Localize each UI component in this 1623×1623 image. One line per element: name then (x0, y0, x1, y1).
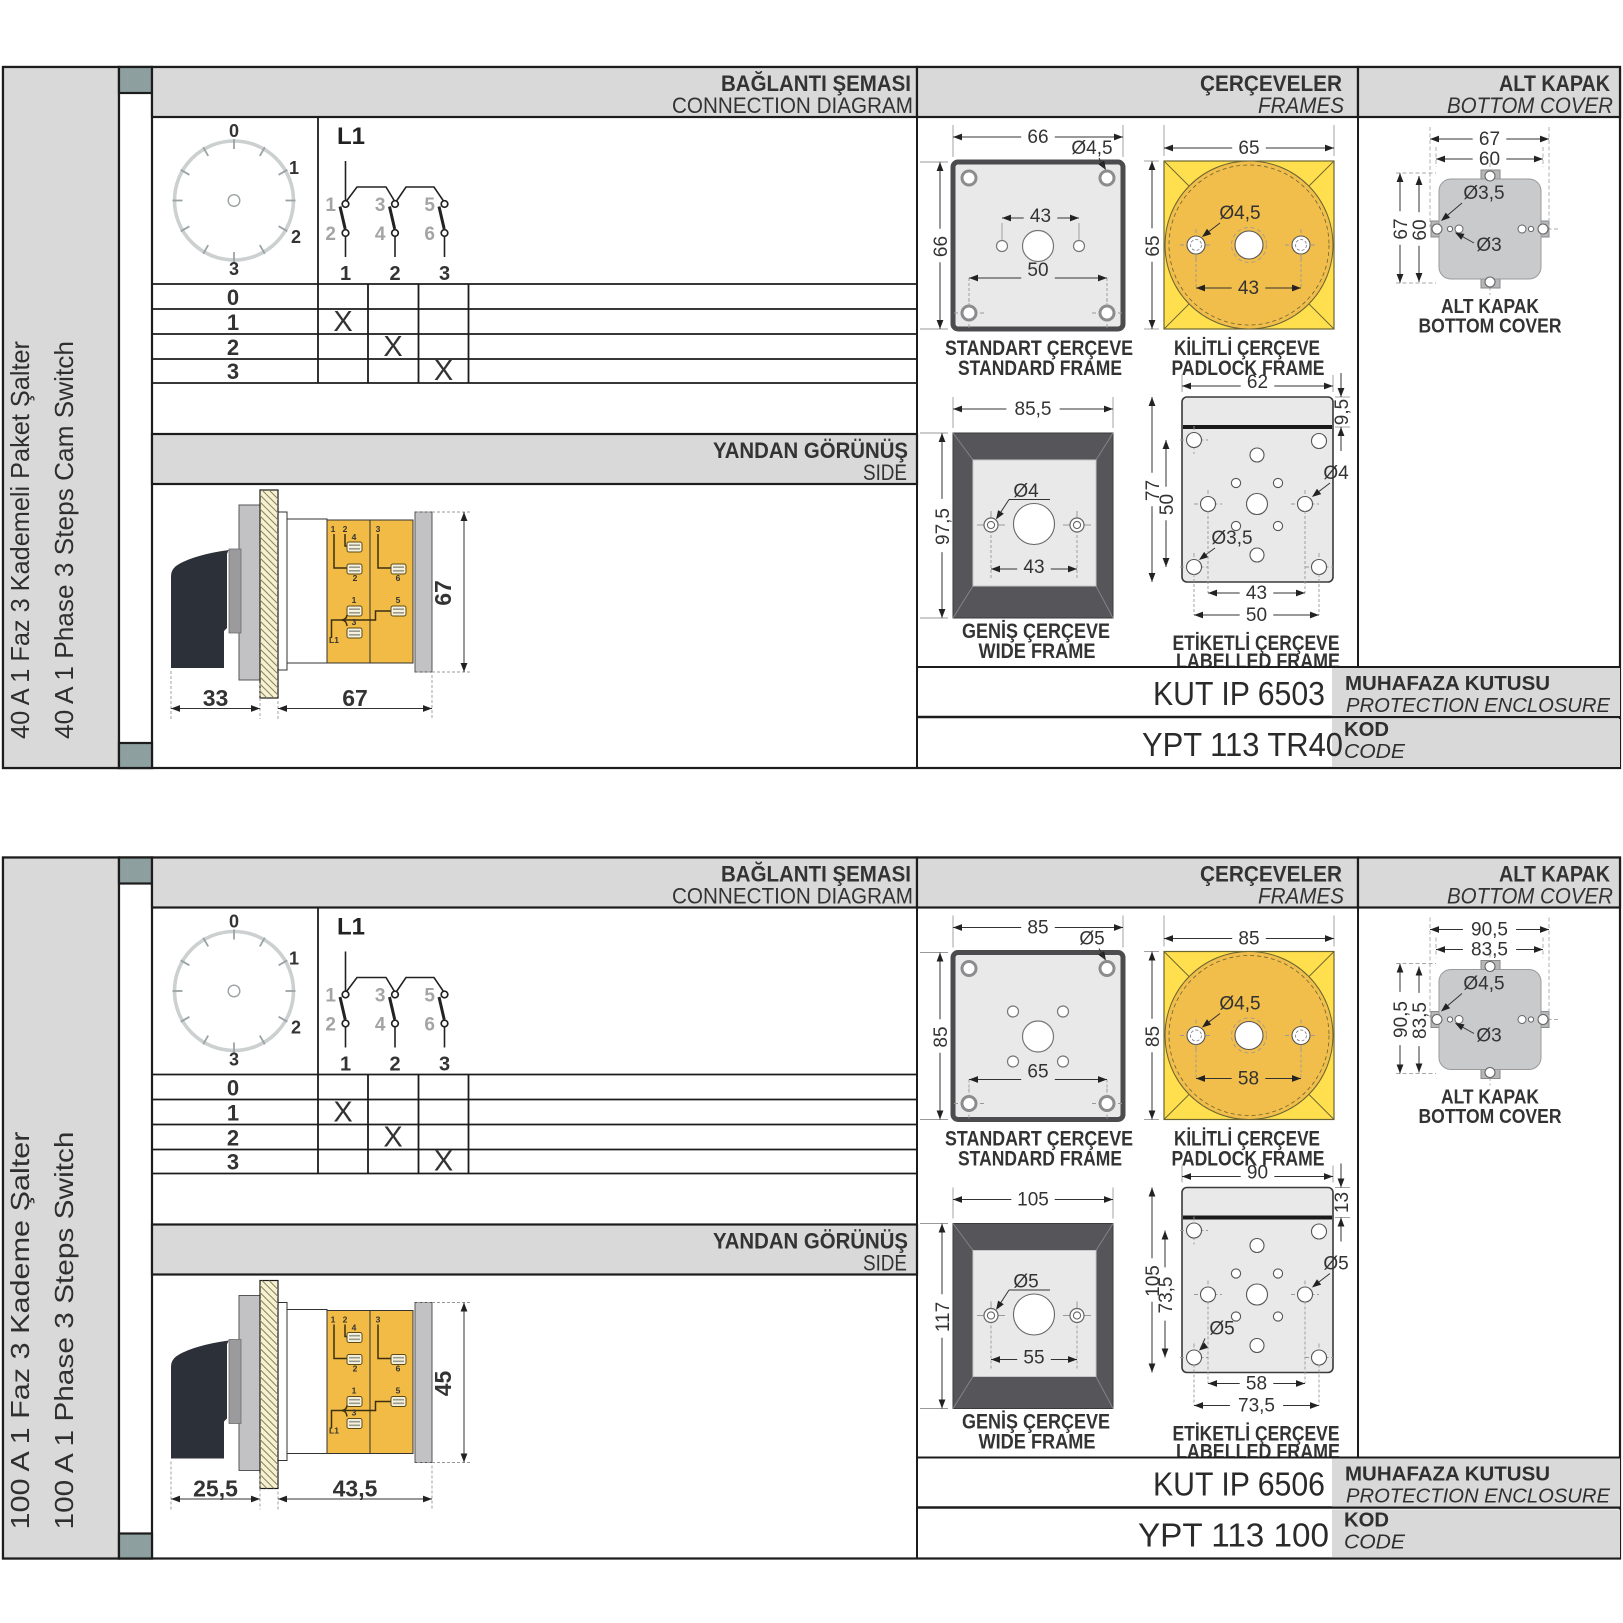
svg-text:6: 6 (424, 224, 435, 245)
svg-text:90,5: 90,5 (1471, 920, 1508, 941)
svg-text:3: 3 (229, 1050, 239, 1070)
svg-text:85,5: 85,5 (1015, 399, 1052, 420)
svg-text:90: 90 (1247, 1163, 1268, 1184)
svg-text:67: 67 (1479, 129, 1500, 150)
svg-text:BOTTOM COVER: BOTTOM COVER (1447, 884, 1613, 909)
svg-text:KUT IP 6503: KUT IP 6503 (1153, 675, 1325, 712)
svg-text:85: 85 (1238, 929, 1259, 950)
svg-text:1: 1 (331, 524, 336, 534)
svg-text:Ø4,5: Ø4,5 (1463, 974, 1504, 995)
svg-text:85: 85 (1027, 918, 1048, 939)
svg-text:1: 1 (227, 310, 239, 335)
svg-text:73,5: 73,5 (1238, 1396, 1275, 1417)
svg-text:4: 4 (375, 1015, 386, 1036)
svg-text:STANDARD FRAME: STANDARD FRAME (958, 357, 1122, 380)
svg-text:Ø5: Ø5 (1079, 929, 1104, 950)
svg-text:9,5: 9,5 (1332, 399, 1353, 425)
svg-text:5: 5 (396, 595, 401, 605)
svg-text:MUHAFAZA KUTUSU: MUHAFAZA KUTUSU (1345, 1464, 1550, 1486)
svg-text:FRAMES: FRAMES (1258, 93, 1344, 118)
svg-text:85: 85 (1143, 1026, 1164, 1047)
svg-text:3: 3 (439, 263, 450, 285)
svg-text:5: 5 (424, 986, 435, 1007)
svg-text:Ø4,5: Ø4,5 (1219, 203, 1260, 224)
svg-text:CONNECTION DIAGRAM: CONNECTION DIAGRAM (672, 884, 913, 909)
svg-text:SIDE: SIDE (863, 1251, 907, 1276)
svg-text:83,5: 83,5 (1471, 940, 1508, 961)
svg-text:1: 1 (325, 986, 336, 1007)
svg-text:4: 4 (352, 532, 357, 542)
svg-text:KOD: KOD (1344, 1510, 1389, 1532)
svg-text:KUT IP 6506: KUT IP 6506 (1153, 1466, 1325, 1503)
svg-text:3: 3 (375, 986, 386, 1007)
svg-text:3: 3 (352, 1408, 357, 1418)
svg-text:1: 1 (352, 1386, 357, 1396)
svg-text:Ø5: Ø5 (1323, 1254, 1348, 1275)
svg-text:0: 0 (227, 1076, 239, 1101)
svg-text:Ø4: Ø4 (1013, 481, 1039, 502)
svg-text:65: 65 (1027, 1062, 1048, 1083)
svg-text:Ø3: Ø3 (1476, 1026, 1501, 1047)
svg-text:BOTTOM COVER: BOTTOM COVER (1447, 93, 1613, 118)
svg-text:73,5: 73,5 (1156, 1277, 1177, 1314)
svg-text:4: 4 (375, 224, 386, 245)
svg-text:LABELLED FRAME: LABELLED FRAME (1176, 650, 1340, 673)
svg-text:2: 2 (291, 1018, 301, 1038)
svg-text:3: 3 (227, 359, 239, 384)
svg-text:Ø5: Ø5 (1013, 1272, 1038, 1293)
svg-text:MUHAFAZA KUTUSU: MUHAFAZA KUTUSU (1345, 673, 1550, 695)
svg-text:0: 0 (229, 912, 239, 932)
svg-text:1: 1 (289, 158, 299, 178)
svg-text:1: 1 (289, 949, 299, 969)
svg-text:Ø3,5: Ø3,5 (1211, 528, 1252, 549)
svg-text:45: 45 (430, 1371, 456, 1397)
svg-text:3: 3 (439, 1054, 450, 1076)
svg-text:65: 65 (1143, 235, 1164, 256)
svg-text:43: 43 (1030, 206, 1051, 227)
svg-text:2: 2 (291, 227, 301, 247)
svg-text:43: 43 (1238, 278, 1259, 299)
svg-text:5: 5 (424, 195, 435, 216)
svg-text:Ø3: Ø3 (1476, 235, 1501, 256)
svg-text:50: 50 (1157, 494, 1178, 515)
svg-text:STANDARD FRAME: STANDARD FRAME (958, 1148, 1122, 1171)
svg-text:1: 1 (340, 1054, 351, 1076)
svg-text:33: 33 (203, 685, 229, 711)
svg-text:58: 58 (1246, 1374, 1267, 1395)
svg-text:97,5: 97,5 (933, 508, 954, 545)
svg-text:4: 4 (352, 1323, 357, 1333)
svg-text:1: 1 (352, 595, 357, 605)
svg-text:0: 0 (229, 121, 239, 141)
svg-text:WIDE FRAME: WIDE FRAME (979, 1431, 1096, 1454)
svg-text:YPT 113 TR40: YPT 113 TR40 (1142, 726, 1343, 763)
svg-text:3: 3 (375, 195, 386, 216)
svg-text:CODE: CODE (1344, 1532, 1406, 1554)
svg-text:CONNECTION DIAGRAM: CONNECTION DIAGRAM (672, 93, 913, 118)
svg-text:Ø5: Ø5 (1209, 1319, 1234, 1340)
svg-text:5: 5 (396, 1386, 401, 1396)
svg-text:66: 66 (931, 236, 952, 257)
svg-text:60: 60 (1479, 149, 1500, 170)
svg-text:43: 43 (1023, 557, 1044, 578)
svg-text:6: 6 (396, 1364, 401, 1374)
svg-text:2: 2 (227, 335, 239, 360)
svg-text:X: X (434, 1146, 453, 1178)
svg-text:90,5: 90,5 (1391, 1001, 1412, 1038)
svg-text:66: 66 (1027, 127, 1048, 148)
svg-text:X: X (383, 1122, 402, 1154)
svg-text:40 A 1 Faz 3 Kademeli Paket Şa: 40 A 1 Faz 3 Kademeli Paket Şalter (5, 341, 35, 739)
svg-text:40 A 1 Phase 3 Steps Cam Switc: 40 A 1 Phase 3 Steps Cam Switch (49, 341, 79, 739)
svg-text:3: 3 (376, 1315, 381, 1325)
svg-text:85: 85 (931, 1026, 952, 1047)
svg-text:105: 105 (1017, 1190, 1049, 1211)
svg-text:PROTECTION ENCLOSURE: PROTECTION ENCLOSURE (1346, 1486, 1611, 1508)
svg-text:X: X (333, 306, 352, 338)
svg-text:62: 62 (1247, 372, 1268, 393)
svg-text:55: 55 (1023, 1348, 1044, 1369)
svg-text:3: 3 (376, 524, 381, 534)
svg-text:Ø4,5: Ø4,5 (1219, 994, 1260, 1015)
svg-text:2: 2 (325, 1015, 336, 1036)
svg-text:2: 2 (389, 1054, 400, 1076)
svg-text:Ø4: Ø4 (1323, 463, 1349, 484)
svg-text:2: 2 (343, 1315, 348, 1325)
svg-text:X: X (333, 1097, 352, 1129)
svg-text:BOTTOM COVER: BOTTOM COVER (1419, 1106, 1562, 1128)
svg-text:6: 6 (424, 1015, 435, 1036)
svg-text:L1: L1 (337, 914, 365, 941)
svg-text:67: 67 (1391, 218, 1412, 239)
svg-text:58: 58 (1238, 1069, 1259, 1090)
svg-text:3: 3 (352, 617, 357, 627)
svg-text:2: 2 (389, 263, 400, 285)
svg-text:43: 43 (1246, 583, 1267, 604)
svg-text:1: 1 (227, 1101, 239, 1126)
svg-text:2: 2 (353, 1364, 358, 1374)
svg-text:100 A 1 Phase 3 Steps Switch: 100 A 1 Phase 3 Steps Switch (49, 1132, 79, 1530)
svg-text:0: 0 (227, 285, 239, 310)
svg-text:1: 1 (325, 195, 336, 216)
svg-text:WIDE FRAME: WIDE FRAME (979, 640, 1096, 663)
svg-text:X: X (383, 331, 402, 363)
svg-text:Ø3,5: Ø3,5 (1463, 183, 1504, 204)
svg-text:43,5: 43,5 (333, 1476, 378, 1502)
svg-text:50: 50 (1027, 260, 1048, 281)
svg-text:3: 3 (227, 1150, 239, 1175)
svg-text:117: 117 (933, 1302, 954, 1332)
svg-text:2: 2 (325, 224, 336, 245)
svg-text:1: 1 (340, 263, 351, 285)
svg-text:1: 1 (331, 1315, 336, 1325)
svg-text:67: 67 (430, 580, 456, 606)
svg-text:2: 2 (343, 524, 348, 534)
svg-text:67: 67 (342, 685, 368, 711)
svg-text:SIDE: SIDE (863, 460, 907, 485)
svg-text:FRAMES: FRAMES (1258, 884, 1344, 909)
svg-text:2: 2 (353, 573, 358, 583)
svg-text:6: 6 (396, 573, 401, 583)
svg-text:60: 60 (1410, 219, 1431, 240)
svg-text:L1: L1 (337, 123, 365, 150)
svg-text:25,5: 25,5 (193, 1476, 238, 1502)
svg-text:L1: L1 (329, 635, 339, 645)
svg-text:BOTTOM COVER: BOTTOM COVER (1419, 316, 1562, 338)
svg-text:PROTECTION ENCLOSURE: PROTECTION ENCLOSURE (1346, 695, 1611, 717)
svg-text:LABELLED FRAME: LABELLED FRAME (1176, 1441, 1340, 1464)
svg-text:83,5: 83,5 (1410, 1002, 1431, 1039)
svg-text:3: 3 (229, 259, 239, 279)
svg-text:2: 2 (227, 1126, 239, 1151)
svg-text:KOD: KOD (1344, 719, 1389, 741)
svg-text:L1: L1 (329, 1426, 339, 1436)
svg-text:Ø4,5: Ø4,5 (1071, 138, 1112, 159)
svg-text:65: 65 (1238, 138, 1259, 159)
svg-text:CODE: CODE (1344, 741, 1406, 763)
svg-text:50: 50 (1246, 605, 1267, 626)
svg-text:100 A 1 Faz 3 Kademe Şalter: 100 A 1 Faz 3 Kademe Şalter (5, 1131, 35, 1529)
svg-text:X: X (434, 355, 453, 387)
svg-text:13: 13 (1332, 1192, 1353, 1213)
svg-text:YPT 113 100: YPT 113 100 (1138, 1517, 1329, 1554)
